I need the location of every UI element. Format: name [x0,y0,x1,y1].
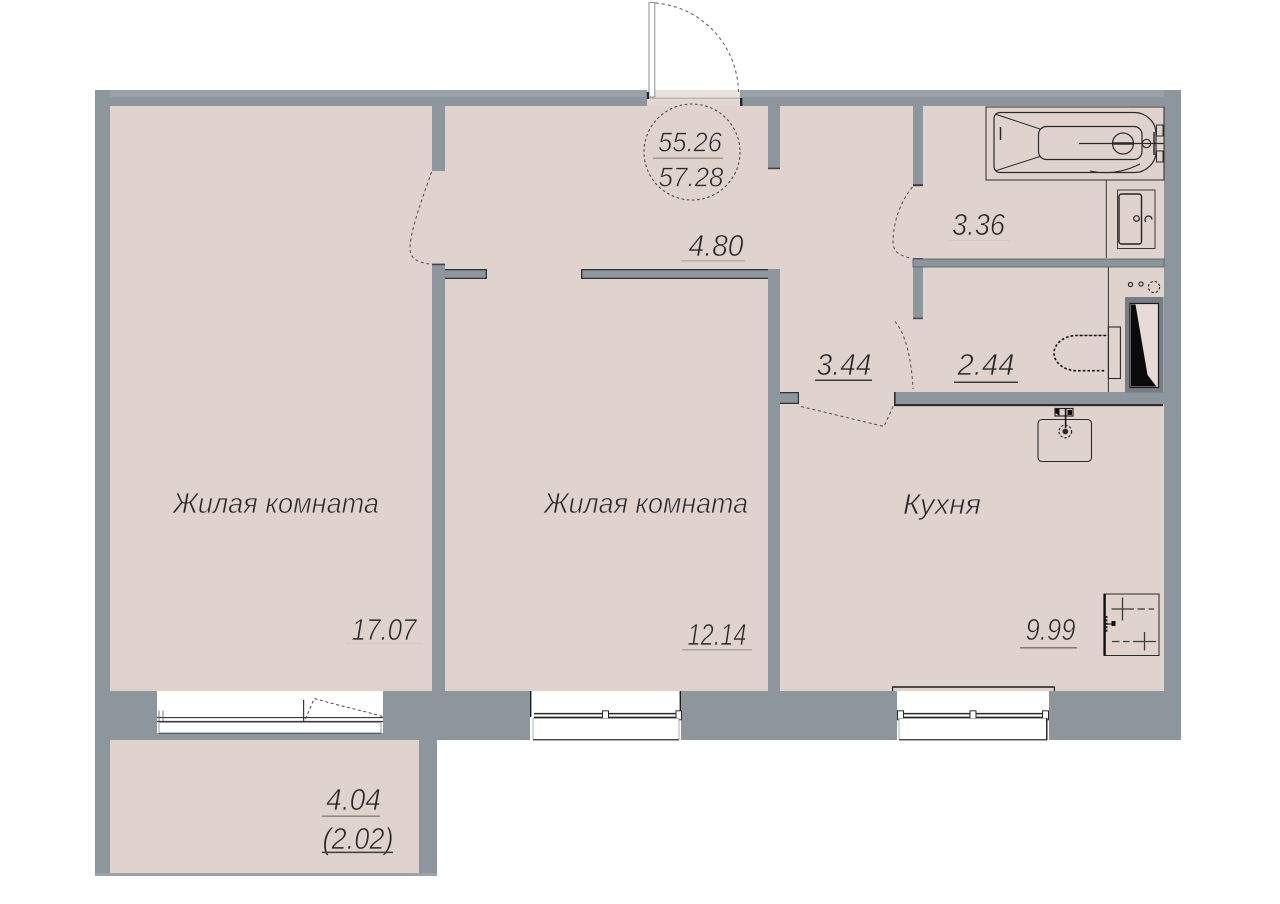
svg-text:Жилая комната: Жилая комната [171,488,379,520]
svg-text:Кухня: Кухня [903,489,981,521]
svg-text:57.28: 57.28 [659,162,724,193]
svg-text:12.14: 12.14 [688,617,747,652]
svg-text:4.04: 4.04 [326,782,381,817]
svg-text:55.26: 55.26 [658,127,722,158]
svg-text:2.44: 2.44 [957,347,1015,382]
svg-text:3.44: 3.44 [817,347,872,382]
svg-text:Жилая комната: Жилая комната [542,488,748,520]
svg-text:3.36: 3.36 [952,207,1006,242]
svg-text:9.99: 9.99 [1026,612,1076,647]
svg-text:17.07: 17.07 [352,612,418,647]
svg-text:(2.02): (2.02) [323,821,394,856]
svg-text:4.80: 4.80 [689,228,744,263]
